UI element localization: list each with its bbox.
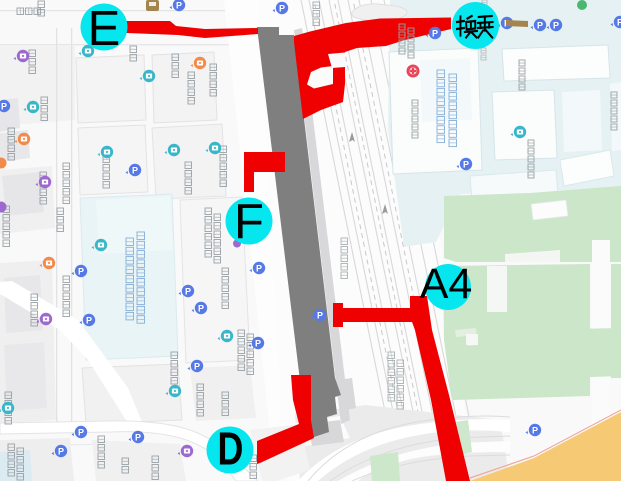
svg-text:P: P: [78, 266, 84, 276]
svg-text:P: P: [617, 17, 621, 27]
svg-text:P: P: [198, 303, 204, 313]
svg-text:A4: A4: [420, 260, 473, 308]
svg-text:P: P: [432, 28, 438, 38]
svg-text:P: P: [132, 165, 138, 175]
svg-text:P: P: [176, 0, 182, 10]
svg-text:D: D: [218, 423, 244, 474]
svg-text:P: P: [553, 20, 559, 30]
svg-text:P: P: [194, 361, 200, 371]
svg-text:P: P: [135, 432, 141, 442]
svg-text:P: P: [317, 310, 323, 320]
svg-text:P: P: [78, 427, 84, 437]
svg-text:P: P: [58, 446, 64, 456]
svg-text:P: P: [537, 20, 543, 30]
svg-text:P: P: [532, 425, 538, 435]
svg-text:P: P: [256, 263, 262, 273]
svg-text:P: P: [255, 338, 261, 348]
svg-text:P: P: [1, 101, 7, 111]
svg-text:P: P: [185, 286, 191, 296]
svg-text:P: P: [463, 159, 469, 169]
svg-text:P: P: [86, 315, 92, 325]
svg-text:P: P: [279, 3, 285, 13]
svg-text:F: F: [234, 195, 264, 249]
svg-text:E: E: [88, 2, 121, 56]
